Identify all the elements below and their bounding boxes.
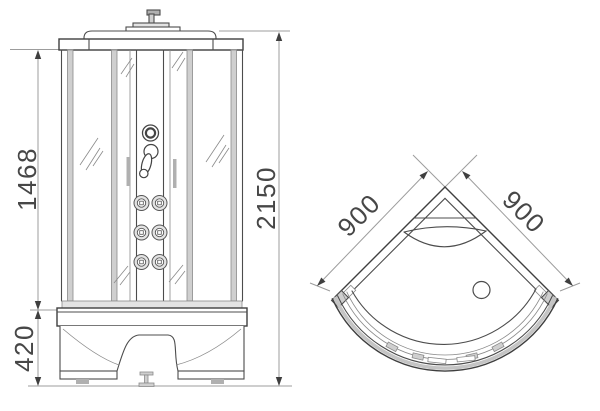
foot-pad (211, 379, 224, 384)
jet-icon (134, 225, 149, 240)
top-view: 900 900 (310, 155, 580, 371)
door-handle (127, 157, 131, 186)
frame-post (231, 50, 237, 301)
jet-icon (152, 255, 167, 270)
dimension-label-overall-height: 2150 (251, 166, 281, 230)
shower-tray (57, 308, 247, 387)
control-panel (139, 125, 158, 178)
curved-door-track (332, 292, 558, 371)
frame-post (187, 50, 193, 301)
floor-edge (352, 289, 536, 344)
drain-icon (473, 282, 490, 299)
door-handle (173, 159, 177, 188)
base-strip-right (178, 371, 244, 379)
track-glass-band (335, 297, 555, 368)
shower-cabin-drawing: 1468 420 2150 (0, 0, 600, 411)
tray-interior (352, 218, 536, 344)
mixer-lever-end (140, 169, 148, 177)
frame-post (68, 50, 74, 301)
plan-door-handle (428, 357, 446, 363)
dimension-label-tray-height: 420 (9, 324, 39, 372)
dimension-label-body-height: 1468 (12, 147, 42, 211)
bottom-door-rail (62, 301, 242, 308)
roof-assembly (59, 10, 243, 50)
control-dial-knob (146, 128, 155, 137)
door-roller (412, 353, 424, 360)
frame-post (112, 50, 118, 301)
front-view: 1468 420 2150 (9, 10, 292, 387)
massage-jets (134, 196, 167, 270)
technical-drawing-page: 1468 420 2150 (0, 0, 600, 411)
jet-icon (134, 255, 149, 270)
seat-lens (404, 227, 486, 247)
foot-pad (76, 379, 89, 384)
track-rail (343, 294, 548, 360)
base-strip-left (60, 371, 117, 379)
dimension-label-left-wall: 900 (331, 187, 386, 242)
jet-icon (152, 196, 167, 211)
dimension-label-right-wall: 900 (496, 184, 551, 239)
glass-hatch-marks (80, 52, 229, 285)
plan-door-handle (457, 356, 475, 362)
jet-icon (134, 196, 149, 211)
top-frame-band (59, 39, 243, 50)
cabin-body (62, 50, 243, 308)
adjustable-screw-foot (139, 372, 154, 387)
tray-rim (57, 308, 247, 326)
jet-icon (152, 225, 167, 240)
